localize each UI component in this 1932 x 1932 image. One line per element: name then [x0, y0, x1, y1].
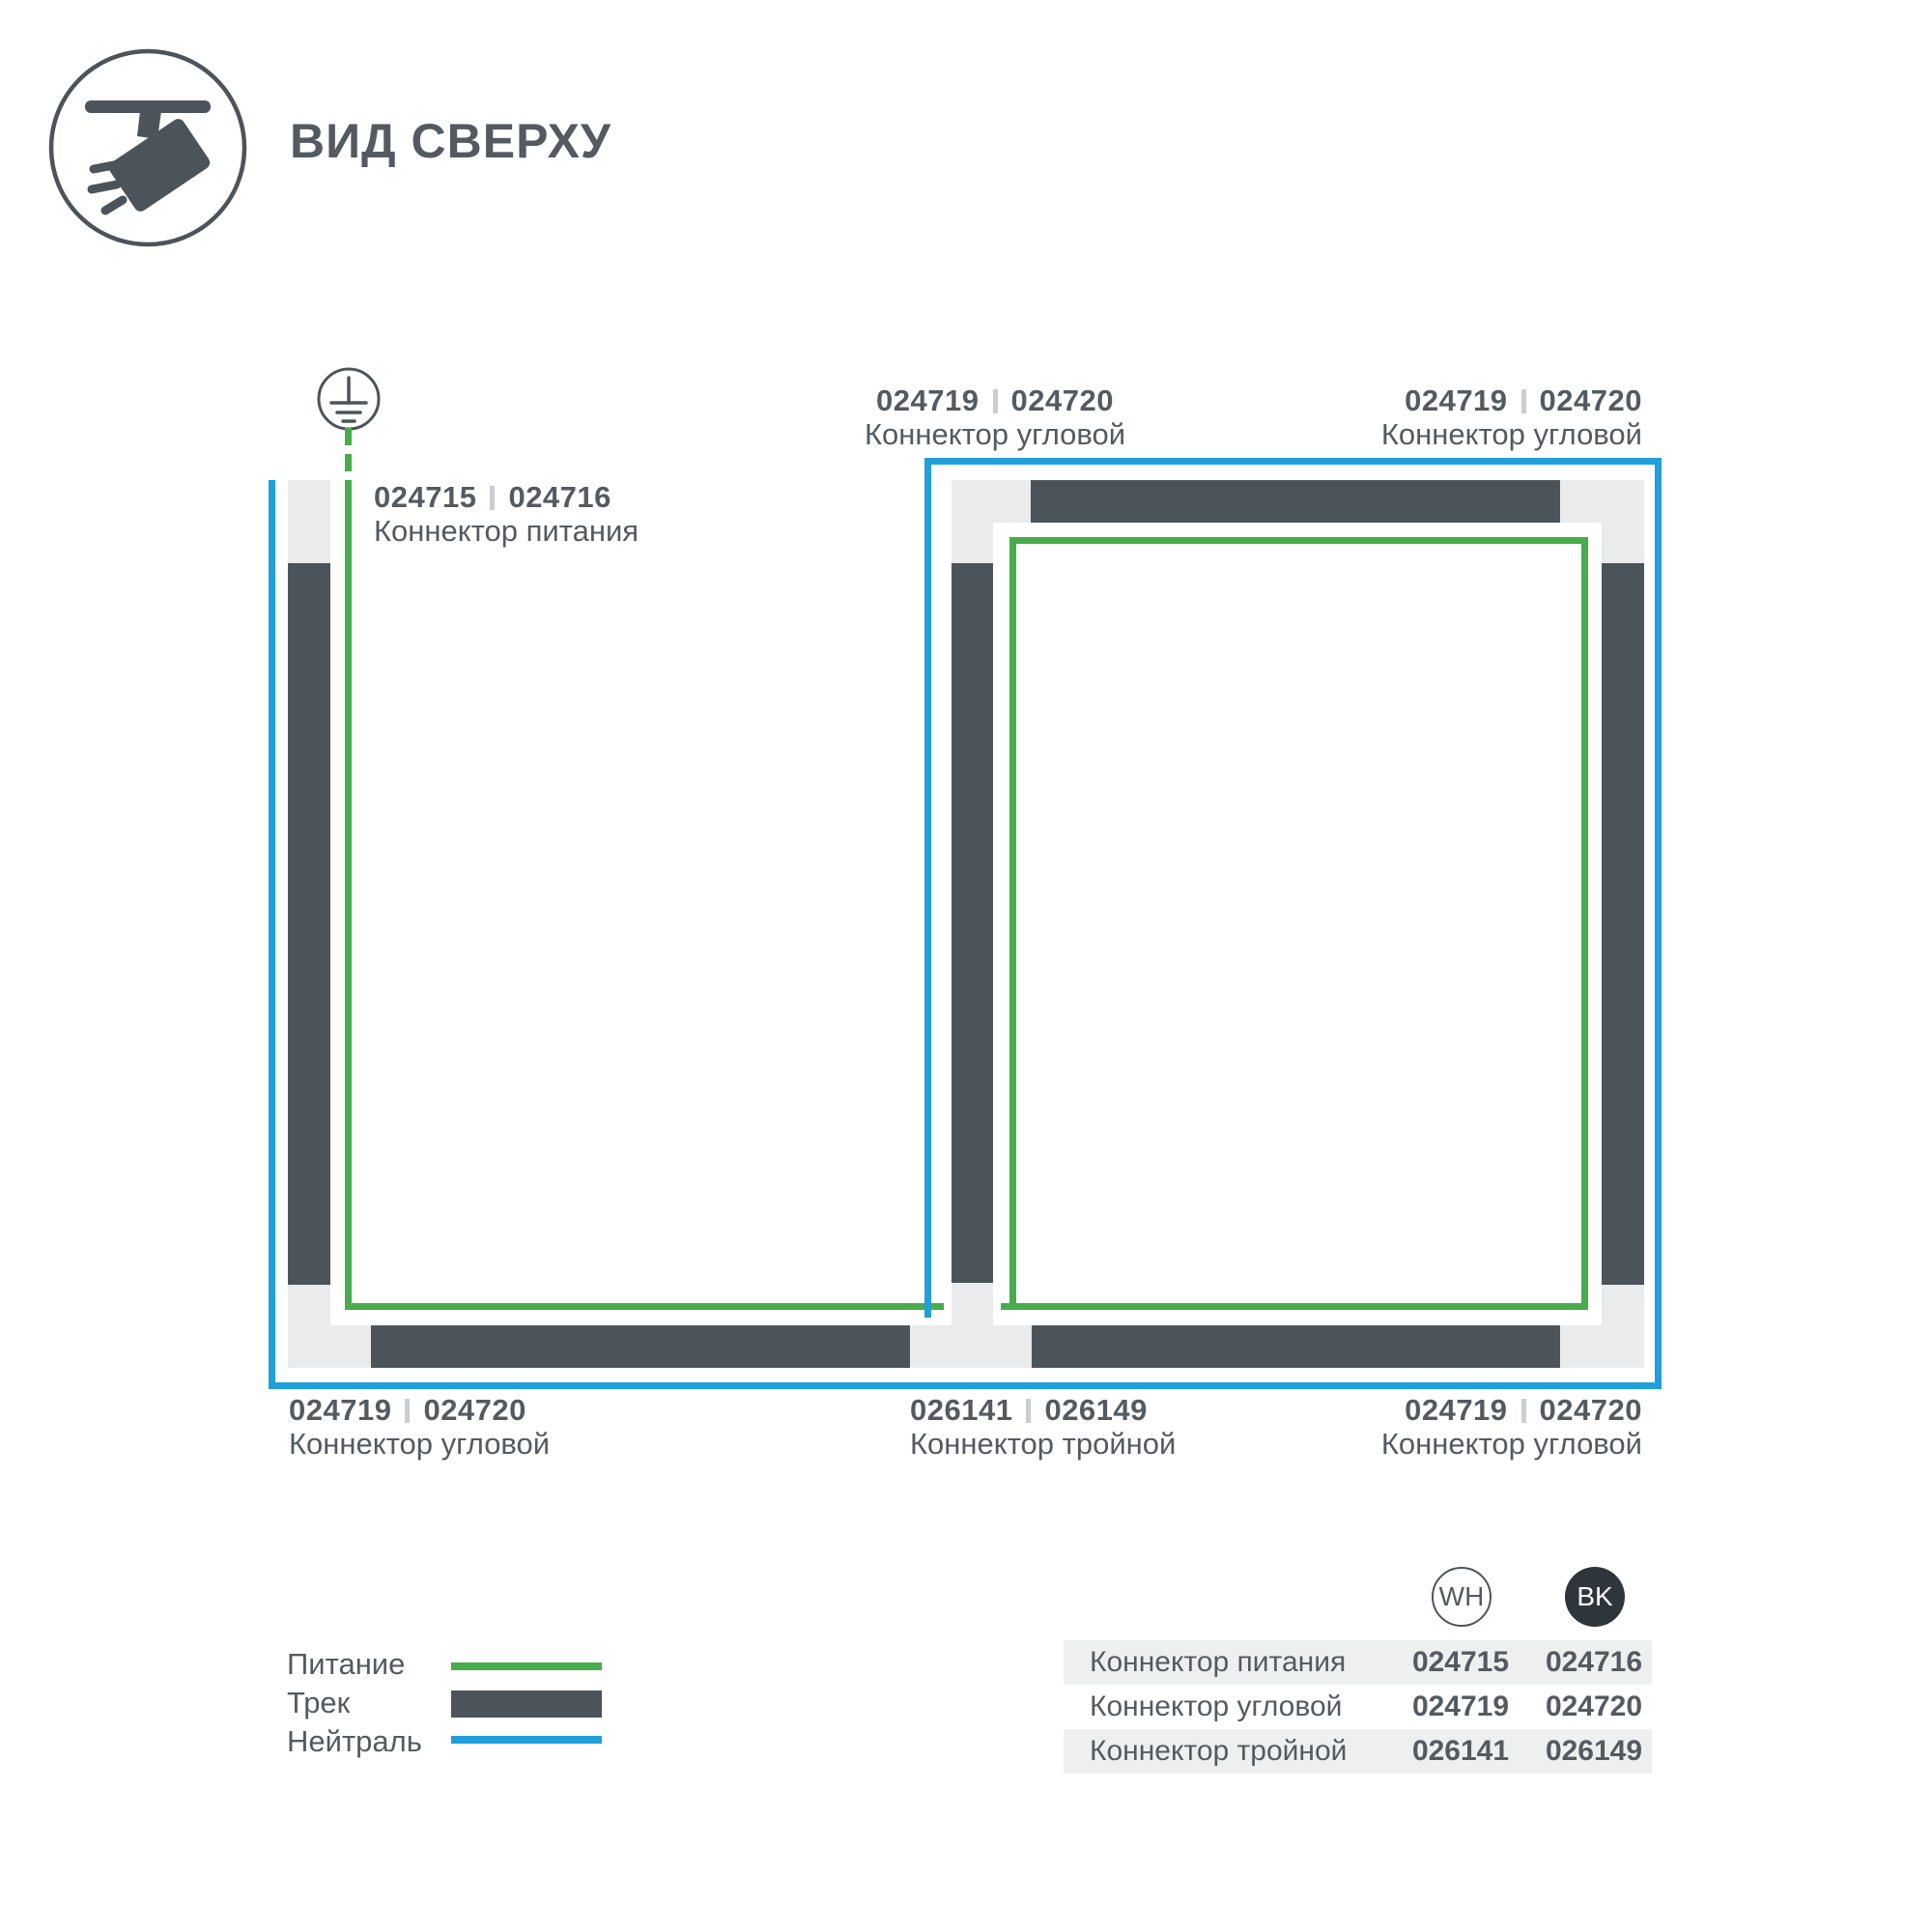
table-row: Коннектор угловой 024719 024720	[1064, 1685, 1652, 1729]
label-corner-top-right: 024719024720 Коннектор угловой	[1294, 383, 1642, 450]
table-row: Коннектор питания 024715 024716	[1064, 1640, 1652, 1685]
code-wh: 024715	[374, 480, 476, 514]
code-separator	[490, 486, 495, 510]
column-code: WH	[1439, 1581, 1485, 1612]
code-wh: 024719	[1405, 384, 1507, 417]
label-codes: 024719024720	[821, 383, 1169, 418]
page-title: ВИД СВЕРХУ	[290, 113, 611, 169]
label-codes: 024719024720	[289, 1392, 550, 1428]
code-bk: 024720	[1011, 384, 1114, 417]
neutral-right-vertical-line	[1655, 458, 1662, 1389]
power-feed-horizontal-line	[345, 1303, 1016, 1310]
label-codes: 026141026149	[910, 1392, 1176, 1428]
track-light-icon	[46, 46, 249, 249]
power-feed-vertical-line	[345, 480, 352, 1310]
column-badge-black: BK	[1565, 1567, 1625, 1627]
ground-symbol-icon	[315, 365, 383, 433]
column-code: BK	[1577, 1581, 1612, 1612]
neutral-bottom-line	[269, 1382, 1662, 1389]
code-bk: 024720	[423, 1393, 526, 1427]
legend-swatch-neutral-line	[451, 1736, 602, 1744]
label-codes: 024719024720	[1294, 383, 1642, 418]
label-triple-connector: 026141026149 Коннектор тройной	[910, 1392, 1176, 1460]
legend-label-neutral: Нейтраль	[287, 1725, 422, 1758]
code-wh: 024719	[289, 1393, 391, 1427]
label-name: Коннектор угловой	[289, 1428, 550, 1460]
code-bk: 024720	[1540, 1393, 1642, 1427]
track-right-section-top	[1031, 480, 1560, 523]
track-left-section-bottom	[371, 1325, 910, 1368]
code-separator	[405, 1399, 410, 1423]
label-name: Коннектор питания	[374, 515, 639, 547]
code-separator	[993, 389, 998, 413]
track-right-section-bottom	[1032, 1325, 1560, 1368]
code-separator	[1521, 389, 1526, 413]
power-feed-dashed-line	[345, 428, 352, 482]
code-bk: 024720	[1540, 384, 1642, 417]
row-name: Коннектор питания	[1090, 1646, 1346, 1679]
row-name: Коннектор угловой	[1090, 1690, 1342, 1723]
label-name: Коннектор угловой	[1294, 1428, 1642, 1460]
legend-swatch-power-line	[451, 1662, 602, 1670]
label-name: Коннектор угловой	[1294, 418, 1642, 450]
code-bk: 024716	[508, 480, 611, 514]
neutral-top-line	[924, 458, 1662, 465]
label-name: Коннектор тройной	[910, 1428, 1176, 1460]
corner-connector-top-left	[952, 480, 993, 563]
triple-connector	[952, 1283, 993, 1329]
corner-connector-top-right	[1602, 480, 1644, 563]
triple-connector	[910, 1325, 1032, 1368]
corner-connector-bottom-left	[288, 1285, 330, 1368]
code-wh: 026141	[910, 1393, 1012, 1427]
code-separator	[1521, 1399, 1526, 1423]
neutral-middle-vertical-line	[924, 458, 931, 1325]
track-left-section-vertical	[288, 563, 330, 1285]
label-codes: 024719024720	[1294, 1392, 1642, 1428]
top-view-installation-diagram: ВИД СВЕРХУ	[0, 0, 1932, 1932]
row-code-wh: 024719	[1403, 1690, 1519, 1723]
row-code-bk: 026149	[1536, 1735, 1652, 1768]
label-name: Коннектор угловой	[821, 418, 1169, 450]
label-power-connector: 024715024716 Коннектор питания	[374, 479, 639, 547]
corner-connector-bottom-right	[1602, 1285, 1644, 1368]
legend-swatch-track	[451, 1690, 602, 1718]
track-right-section-right	[1602, 563, 1644, 1285]
label-corner-top-center: 024719024720 Коннектор угловой	[821, 383, 1169, 450]
legend-label-track: Трек	[287, 1687, 350, 1719]
row-code-bk: 024716	[1536, 1646, 1652, 1679]
row-name: Коннектор тройной	[1090, 1735, 1347, 1768]
code-bk: 026149	[1044, 1393, 1147, 1427]
code-wh: 024719	[876, 384, 979, 417]
row-code-bk: 024720	[1536, 1690, 1652, 1723]
table-row: Коннектор тройной 026141 026149	[1064, 1729, 1652, 1774]
column-badge-white: WH	[1432, 1567, 1492, 1627]
label-codes: 024715024716	[374, 479, 639, 515]
row-code-wh: 024715	[1403, 1646, 1519, 1679]
power-connector	[288, 480, 330, 563]
label-corner-bottom-left: 024719024720 Коннектор угловой	[289, 1392, 550, 1460]
track-right-section-left	[952, 563, 993, 1283]
code-wh: 024719	[1405, 1393, 1507, 1427]
code-separator	[1026, 1399, 1031, 1423]
neutral-left-vertical-line	[269, 480, 275, 1389]
legend-label-power: Питание	[287, 1648, 405, 1681]
label-corner-bottom-right: 024719024720 Коннектор угловой	[1294, 1392, 1642, 1460]
row-code-wh: 026141	[1403, 1735, 1519, 1768]
power-loop-rectangle	[1009, 537, 1588, 1310]
